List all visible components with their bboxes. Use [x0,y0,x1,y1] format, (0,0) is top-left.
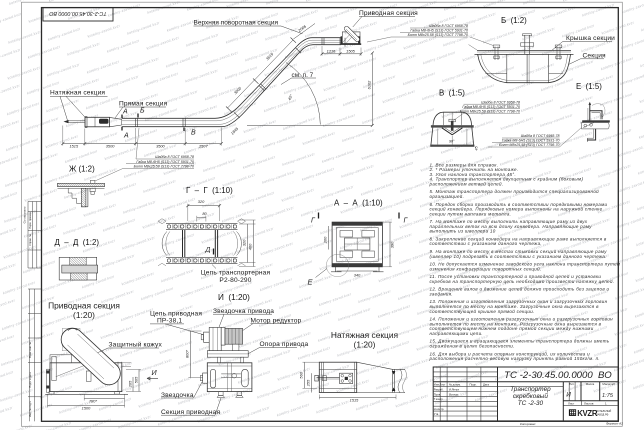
svg-text:780*: 780* [89,399,97,404]
svg-text:Формат А2: Формат А2 [606,421,623,425]
svg-text:Пров.: Пров. [434,392,441,396]
svg-text:Т.контр.: Т.контр. [434,397,444,401]
svg-text:Ж (1:2): Ж (1:2) [69,165,95,174]
svg-text:Разраб.: Разраб. [434,387,444,391]
svg-text:Инв. № подл.: Инв. № подл. [28,401,32,417]
svg-text:1216: 1216 [327,49,336,54]
svg-text:Мотор редуктор: Мотор редуктор [251,317,302,324]
svg-text:90°: 90° [449,139,455,143]
svg-text:Копировал: Копировал [520,422,536,426]
svg-text:1:75: 1:75 [602,393,614,399]
svg-text:расположения расчетно-весовую: расположения расчетно-весовую нагрузку п… [429,355,601,361]
svg-text:390: 390 [390,241,395,248]
svg-text:скребковый: скребковый [513,392,549,400]
svg-text:800*: 800* [185,350,190,358]
svg-text:И: И [566,392,571,399]
svg-text:А: А [123,133,129,140]
svg-text:Шайба 8 ГОСТ 6958-78: Шайба 8 ГОСТ 6958-78 [429,24,468,28]
svg-text:Справ. №: Справ. № [28,234,32,246]
svg-text:Дата: Дата [483,382,489,386]
svg-text:Прямая секция: Прямая секция [119,101,168,108]
svg-text:Шайба 8 ГОСТ 6958-78: Шайба 8 ГОСТ 6958-78 [155,155,194,159]
svg-text:Транспортер: Транспортер [510,386,551,393]
svg-text:выполнить из швеллера 10: выполнить из швеллера 10 [430,229,496,234]
svg-text:2507: 2507 [198,144,208,149]
svg-text:Листов: Листов [584,401,594,405]
svg-text:12. Вращение валов и движение: 12. Вращение валов и движение цепей долж… [430,286,610,292]
svg-text:скребков на транспортерную цеп: скребков на транспортерную цепь необходи… [430,278,615,284]
svg-text:Шайба 8 ГОСТ 6958-78: Шайба 8 ГОСТ 6958-78 [481,100,520,104]
svg-text:Защитный кожух: Защитный кожух [109,341,163,349]
svg-text:Гайка М8-6Н5 (S13) ГОСТ 5931-7: Гайка М8-6Н5 (S13) ГОСТ 5931-70 [136,160,194,164]
svg-text:Секция: Секция [583,53,607,60]
svg-text:Р2-80-290: Р2-80-290 [219,277,251,284]
svg-text:соответствующей крышке прямой: соответствующей крышке прямой секции. [430,308,535,314]
svg-text:А – А (1:10): А – А (1:10) [334,198,383,207]
svg-text:секции путем наплавки металла.: секции путем наплавки металла. [430,211,512,216]
svg-text:560: 560 [299,371,304,378]
svg-text:Утв.: Утв. [434,412,439,416]
svg-text:ЗАВОД РФ: ЗАВОД РФ [596,413,608,416]
svg-text:ТС -2-30: ТС -2-30 [518,400,544,407]
svg-text:направляющими цепи.: направляющими цепи. [430,331,484,336]
svg-text:В: В [191,129,196,136]
svg-text:Д: Д [205,247,211,254]
svg-text:Масса: Масса [586,382,595,386]
svg-text:Натяжная секция: Натяжная секция [331,330,398,340]
svg-text:Гайка М8-6Н5 (S13) ГОСТ 5931-7: Гайка М8-6Н5 (S13) ГОСТ 5931-70 [502,139,560,143]
svg-text:Болт М8х25.58 (S13) ГОСТ 7798-: Болт М8х25.58 (S13) ГОСТ 7798-70 [134,165,194,169]
svg-text:Опора привода: Опора привода [260,341,309,348]
svg-text:В (1:5): В (1:5) [439,89,465,98]
svg-text:Крышка секции: Крышка секции [566,35,615,42]
svg-text:400: 400 [248,243,253,250]
svg-text:соответствии с указанием данно: соответствии с указанием данного чертежа… [430,241,542,246]
svg-text:KVZR: KVZR [577,409,598,418]
svg-text:565: 565 [133,376,138,383]
svg-text:1500: 1500 [82,406,91,411]
svg-text:3500: 3500 [106,144,115,149]
svg-text:И (1:20): И (1:20) [218,293,250,302]
svg-text:Лист: Лист [568,401,575,405]
svg-text:320: 320 [198,199,205,204]
svg-text:Болт М8х25.58 (S13) ГОСТ 7798-: Болт М8х25.58 (S13) ГОСТ 7798-70 [408,33,468,37]
svg-text:А: А [122,109,128,116]
svg-text:Б (1:2): Б (1:2) [501,16,527,25]
svg-text:ограждения в целях безопасност: ограждения в целях безопасности. [430,344,515,349]
svg-text:3500: 3500 [156,144,165,149]
svg-text:Перв. примен.: Перв. примен. [28,211,32,229]
svg-text:И.Янчук: И.Янчук [449,387,460,391]
svg-text:ТС -2-30.45.00.0000 ВО: ТС -2-30.45.00.0000 ВО [504,370,612,381]
svg-text:Изм.Лист: Изм.Лист [434,382,446,386]
svg-text:Волков: Волков [449,392,459,396]
svg-text:Масштаб: Масштаб [602,382,615,386]
svg-text:И: И [152,368,158,377]
svg-text:ТС-2-30.45.00.0000 ВО: ТС-2-30.45.00.0000 ВО [48,10,106,16]
svg-text:Б: Б [140,108,145,115]
svg-text:200: 200 [322,236,327,244]
svg-text:Д – Д (1:2): Д – Д (1:2) [55,238,100,247]
svg-text:Натяжная секция: Натяжная секция [50,90,105,97]
svg-text:расположением ветвей цепей.: расположением ветвей цепей. [429,180,504,186]
svg-text:6102: 6102 [366,80,371,89]
svg-text:Подп. и дата: Подп. и дата [28,372,32,388]
svg-text:№ докум.: № докум. [449,383,461,386]
svg-text:Шайба 8 ГОСТ 6958-78: Шайба 8 ГОСТ 6958-78 [521,134,560,138]
svg-text:изменения конфигурации поворот: изменения конфигурации поворотных секций… [430,265,542,271]
svg-text:Болт М8х25.58 (S13) ГОСТ 7798-: Болт М8х25.58 (S13) ГОСТ 7798-70 [499,143,559,147]
svg-text:(швеллер 10) подрезать в соотв: (швеллер 10) подрезать в соответствии с … [430,254,607,259]
svg-text:Цепь приводная: Цепь приводная [150,311,202,318]
svg-text:(1:20): (1:20) [354,340,376,350]
svg-text:Подп.: Подп. [470,382,477,386]
svg-text:организацией.: организацией. [430,193,465,199]
svg-text:заедания.: заедания. [429,292,454,297]
svg-text:Цепь транспортерная: Цепь транспортерная [201,270,271,277]
svg-text:Гайка М8-6Н5 (S13) ГОСТ 5931-7: Гайка М8-6Н5 (S13) ГОСТ 5931-70 [410,29,468,33]
svg-text:Верхняя поворотная секция: Верхняя поворотная секция [194,20,279,27]
svg-text:340: 340 [354,273,361,278]
svg-text:1515: 1515 [350,398,359,403]
svg-text:Секция приводная: Секция приводная [161,409,220,416]
svg-text:Лит.: Лит. [569,382,575,386]
svg-text:255: 255 [306,379,311,387]
svg-text:Согласовано: Согласовано [23,206,27,223]
svg-text:Приводная секция: Приводная секция [48,301,120,311]
svg-text:320: 320 [242,239,247,246]
svg-text:Н.контр.: Н.контр. [434,407,445,411]
svg-text:Гайка М8-6Н5 (S13) ГОСТ 5931-7: Гайка М8-6Н5 (S13) ГОСТ 5931-70 [462,105,520,109]
svg-text:1505: 1505 [346,49,355,54]
svg-text:Взам. инв. №: Взам. инв. № [28,342,32,358]
svg-text:Приводная секция: Приводная секция [359,10,418,17]
svg-text:(1:20): (1:20) [73,310,95,320]
svg-text:Болт М8х25.58 (S13) ГОСТ 7798-: Болт М8х25.58 (S13) ГОСТ 7798-70 [460,109,520,113]
svg-text:Г – Г (1:10): Г – Г (1:10) [186,186,233,195]
svg-text:265: 265 [127,380,132,388]
svg-text:Е (1:5): Е (1:5) [576,82,602,91]
svg-text:Звездочка привода: Звездочка привода [213,308,274,315]
svg-text:1515: 1515 [69,144,78,149]
